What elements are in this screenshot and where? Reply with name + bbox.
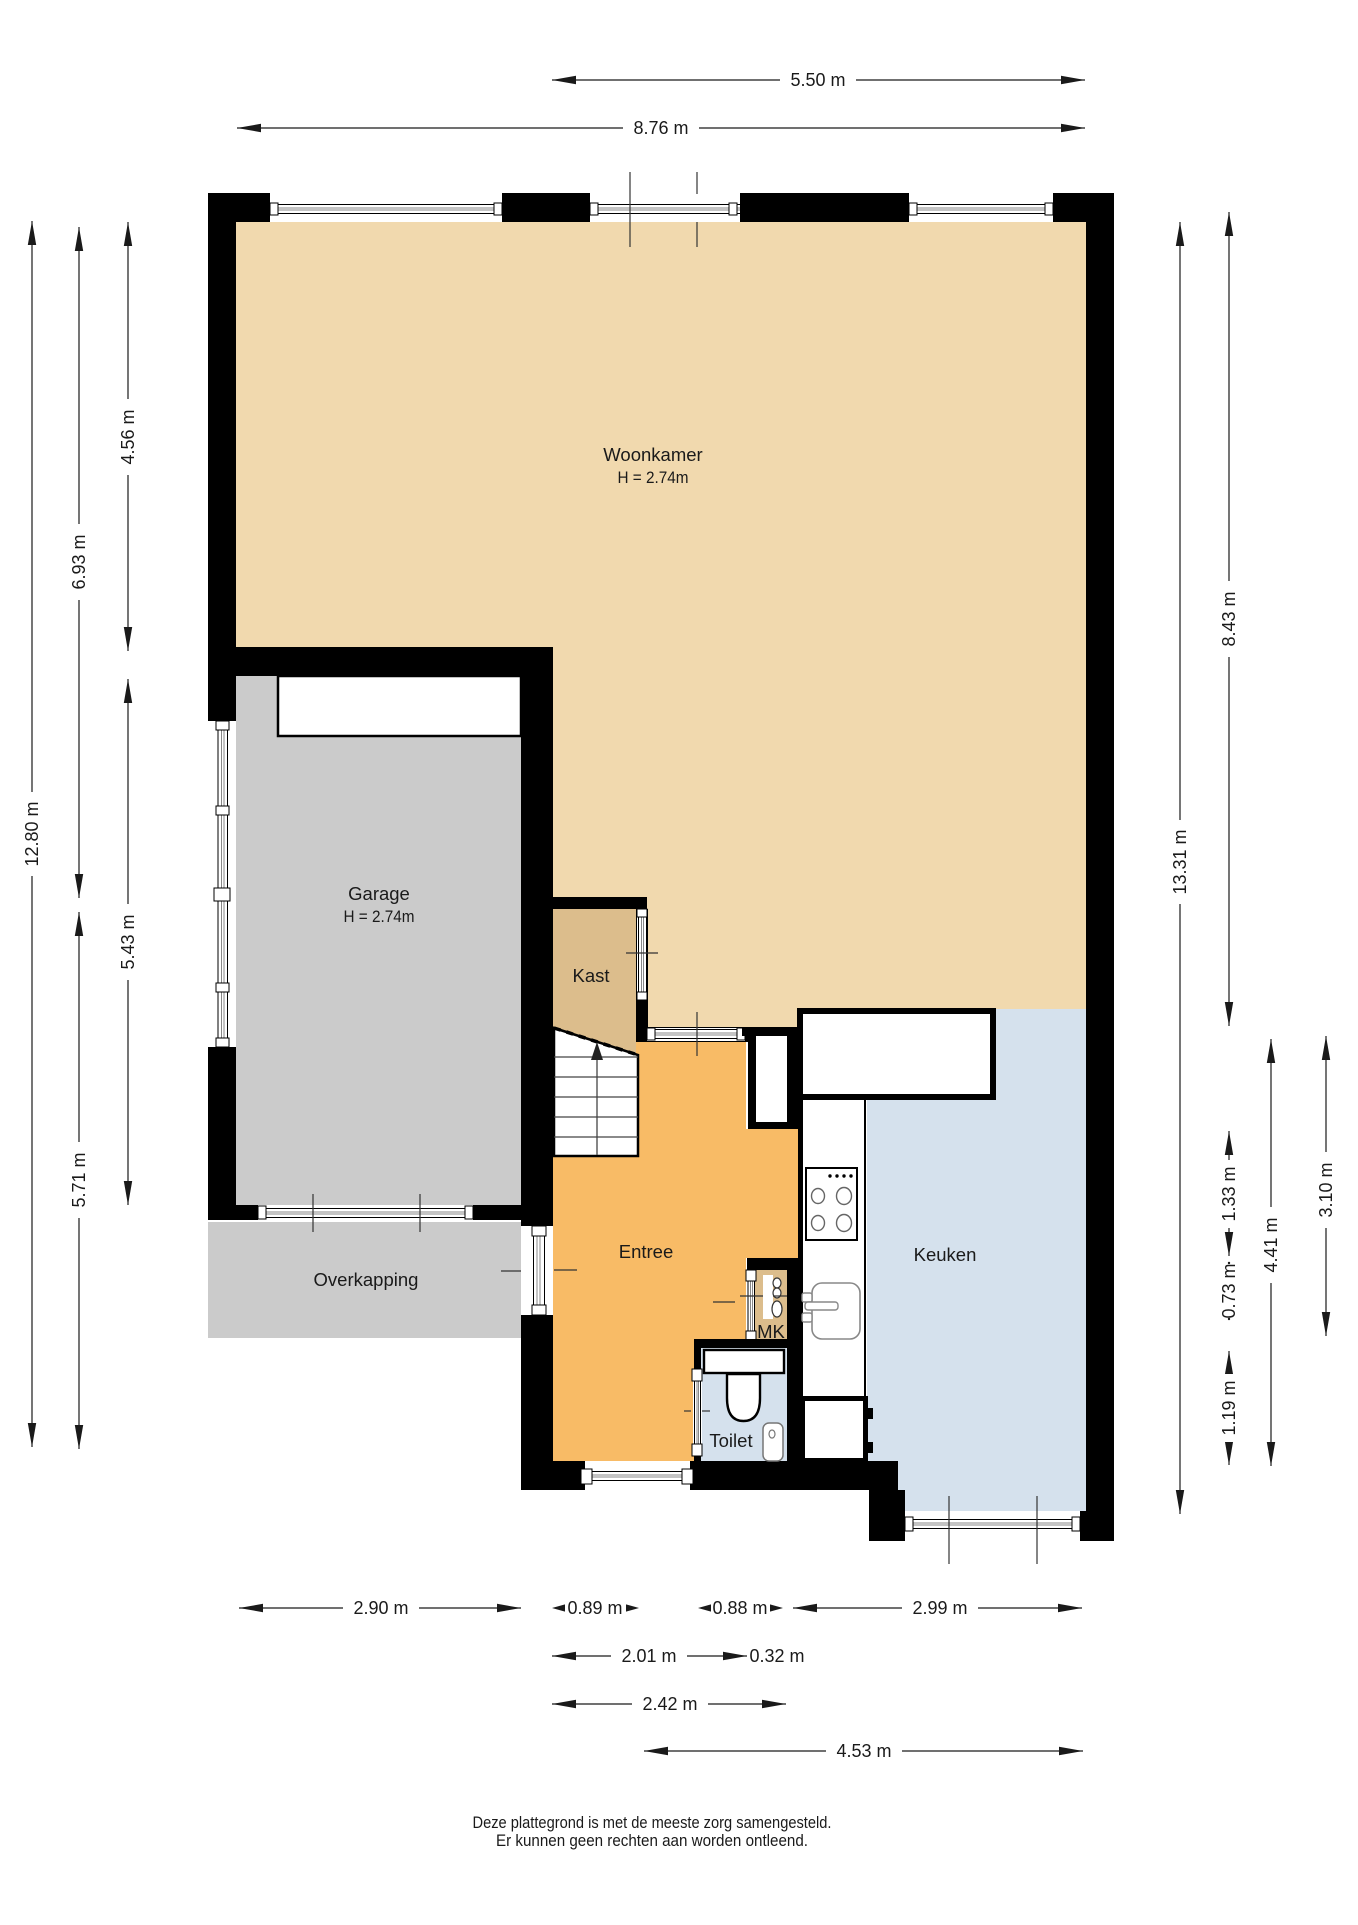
svg-text:4.53 m: 4.53 m — [836, 1741, 891, 1761]
svg-text:8.76 m: 8.76 m — [633, 118, 688, 138]
svg-text:1.33 m: 1.33 m — [1219, 1166, 1239, 1221]
svg-text:Garage: Garage — [348, 883, 410, 904]
svg-text:3.10 m: 3.10 m — [1316, 1162, 1336, 1217]
svg-text:Kast: Kast — [572, 965, 609, 986]
svg-text:Entree: Entree — [619, 1241, 674, 1262]
svg-text:0.73 m: 0.73 m — [1219, 1263, 1239, 1318]
svg-text:Toilet: Toilet — [709, 1430, 752, 1451]
svg-text:13.31 m: 13.31 m — [1170, 829, 1190, 894]
svg-text:2.90 m: 2.90 m — [353, 1598, 408, 1618]
svg-text:4.56 m: 4.56 m — [118, 409, 138, 464]
svg-text:2.99 m: 2.99 m — [912, 1598, 967, 1618]
svg-text:5.43 m: 5.43 m — [118, 914, 138, 969]
svg-text:8.43 m: 8.43 m — [1219, 591, 1239, 646]
svg-text:2.01 m: 2.01 m — [621, 1646, 676, 1666]
svg-text:MK: MK — [757, 1321, 785, 1342]
svg-text:0.89 m: 0.89 m — [567, 1598, 622, 1618]
svg-text:0.88 m: 0.88 m — [712, 1598, 767, 1618]
svg-text:Deze plattegrond is met de mee: Deze plattegrond is met de meeste zorg s… — [473, 1813, 832, 1832]
svg-text:1.19 m: 1.19 m — [1219, 1380, 1239, 1435]
svg-text:5.71 m: 5.71 m — [69, 1152, 89, 1207]
svg-text:2.42 m: 2.42 m — [642, 1694, 697, 1714]
svg-text:0.32 m: 0.32 m — [749, 1646, 804, 1666]
svg-text:5.50 m: 5.50 m — [790, 70, 845, 90]
svg-text:Er kunnen geen rechten aan wor: Er kunnen geen rechten aan worden ontlee… — [496, 1831, 808, 1850]
svg-text:Keuken: Keuken — [914, 1244, 977, 1265]
svg-text:Overkapping: Overkapping — [314, 1269, 419, 1290]
svg-text:Woonkamer: Woonkamer — [603, 444, 702, 465]
svg-text:H = 2.74m: H = 2.74m — [344, 907, 415, 926]
svg-text:12.80 m: 12.80 m — [22, 801, 42, 866]
svg-text:H = 2.74m: H = 2.74m — [618, 468, 689, 487]
svg-text:6.93 m: 6.93 m — [69, 534, 89, 589]
svg-text:4.41 m: 4.41 m — [1261, 1217, 1281, 1272]
